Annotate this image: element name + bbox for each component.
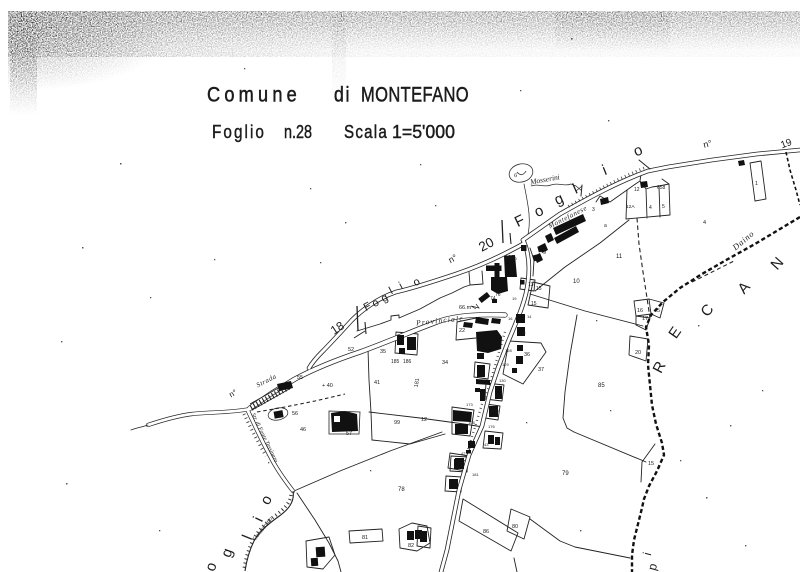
svg-text:66.m: 66.m	[459, 305, 472, 311]
svg-text:78: 78	[398, 487, 405, 493]
svg-text:18: 18	[521, 330, 526, 335]
svg-text:17: 17	[642, 316, 648, 322]
svg-text:9: 9	[543, 250, 546, 256]
svg-text:16: 16	[508, 316, 513, 321]
svg-text:o: o	[202, 560, 221, 572]
svg-text:35: 35	[380, 349, 386, 355]
svg-text:37: 37	[538, 367, 544, 373]
svg-text:15: 15	[648, 461, 654, 467]
svg-text:185: 185	[391, 359, 400, 365]
svg-text:a: a	[604, 223, 607, 229]
svg-text:i: i	[640, 551, 654, 557]
svg-text:86: 86	[483, 529, 489, 535]
svg-text:130: 130	[499, 378, 506, 383]
svg-text:6: 6	[514, 173, 518, 179]
svg-text:181: 181	[472, 472, 479, 477]
svg-text:14: 14	[527, 314, 532, 319]
svg-text:45: 45	[654, 308, 660, 314]
svg-text:16: 16	[637, 308, 643, 314]
svg-text:186: 186	[403, 359, 412, 365]
svg-text:81: 81	[362, 535, 368, 541]
svg-text:15: 15	[536, 286, 542, 292]
svg-text:57: 57	[346, 431, 352, 437]
svg-text:36: 36	[524, 352, 530, 358]
svg-text:173: 173	[466, 402, 473, 407]
svg-text:160: 160	[510, 256, 517, 261]
svg-text:Comune: Comune	[207, 83, 301, 107]
svg-text:Scala: Scala	[344, 121, 388, 142]
svg-text:108: 108	[468, 420, 475, 425]
svg-text:46: 46	[300, 427, 306, 433]
svg-text:12: 12	[634, 187, 640, 193]
svg-text:13: 13	[528, 282, 534, 288]
svg-text:Strada: Strada	[255, 372, 278, 389]
svg-text:o: o	[257, 492, 276, 507]
svg-text:E: E	[665, 324, 685, 342]
svg-text:n.28: n.28	[284, 121, 312, 142]
svg-text:18: 18	[328, 318, 347, 337]
svg-text:41: 41	[374, 380, 380, 386]
svg-text:76: 76	[495, 292, 501, 298]
svg-text:12A: 12A	[626, 204, 635, 210]
svg-text:i: i	[600, 162, 609, 179]
svg-text:176: 176	[488, 424, 495, 429]
svg-text:n°: n°	[702, 138, 713, 150]
svg-text:19: 19	[512, 296, 517, 301]
svg-text:n°: n°	[228, 388, 239, 400]
svg-text:i: i	[250, 514, 267, 524]
svg-text:3: 3	[592, 207, 595, 213]
svg-text:3: 3	[547, 236, 550, 242]
svg-text:g: g	[218, 546, 237, 560]
svg-text:g: g	[552, 190, 567, 209]
svg-text:80: 80	[512, 524, 518, 530]
svg-text:4: 4	[649, 205, 652, 211]
svg-text:Daino: Daino	[730, 228, 757, 253]
svg-text:129: 129	[502, 362, 509, 367]
svg-text:4: 4	[703, 220, 706, 226]
svg-text:74: 74	[490, 296, 496, 302]
svg-text:20: 20	[635, 350, 641, 356]
svg-text:A: A	[734, 279, 753, 298]
svg-text:85: 85	[598, 383, 605, 389]
svg-text:15: 15	[531, 301, 537, 307]
svg-text:R: R	[649, 358, 669, 376]
svg-text:79: 79	[562, 471, 569, 477]
svg-text:42: 42	[461, 451, 466, 456]
svg-text:o: o	[631, 141, 645, 160]
svg-text:N: N	[767, 254, 787, 273]
svg-text:175: 175	[492, 408, 499, 413]
svg-text:C: C	[697, 301, 717, 320]
svg-text:82: 82	[408, 543, 414, 549]
svg-text:1: 1	[755, 181, 758, 187]
svg-text:131: 131	[495, 394, 502, 399]
svg-text:F: F	[512, 212, 528, 231]
svg-text:di: di	[334, 83, 351, 107]
svg-text:56: 56	[292, 411, 298, 417]
svg-text:o: o	[532, 202, 547, 221]
svg-text:181: 181	[414, 378, 422, 388]
svg-text:n°: n°	[447, 252, 460, 265]
svg-text:11: 11	[616, 254, 623, 260]
svg-text:20: 20	[476, 234, 496, 254]
svg-text:1=5'000: 1=5'000	[392, 121, 455, 142]
svg-text:43: 43	[484, 442, 489, 447]
svg-text:+ 40: + 40	[322, 383, 333, 389]
svg-text:99: 99	[394, 420, 400, 426]
svg-text:5: 5	[662, 204, 665, 210]
svg-text:Foglio: Foglio	[212, 121, 266, 142]
svg-text:p: p	[645, 562, 660, 572]
svg-text:12: 12	[421, 417, 427, 423]
svg-text:128: 128	[505, 348, 512, 353]
svg-text:MONTEFANO: MONTEFANO	[361, 83, 469, 107]
svg-text:22: 22	[459, 328, 465, 334]
svg-text:658: 658	[657, 185, 666, 191]
svg-text:55: 55	[297, 375, 303, 381]
svg-text:10: 10	[573, 279, 580, 285]
svg-text:34: 34	[442, 360, 448, 366]
svg-text:52: 52	[348, 347, 354, 353]
